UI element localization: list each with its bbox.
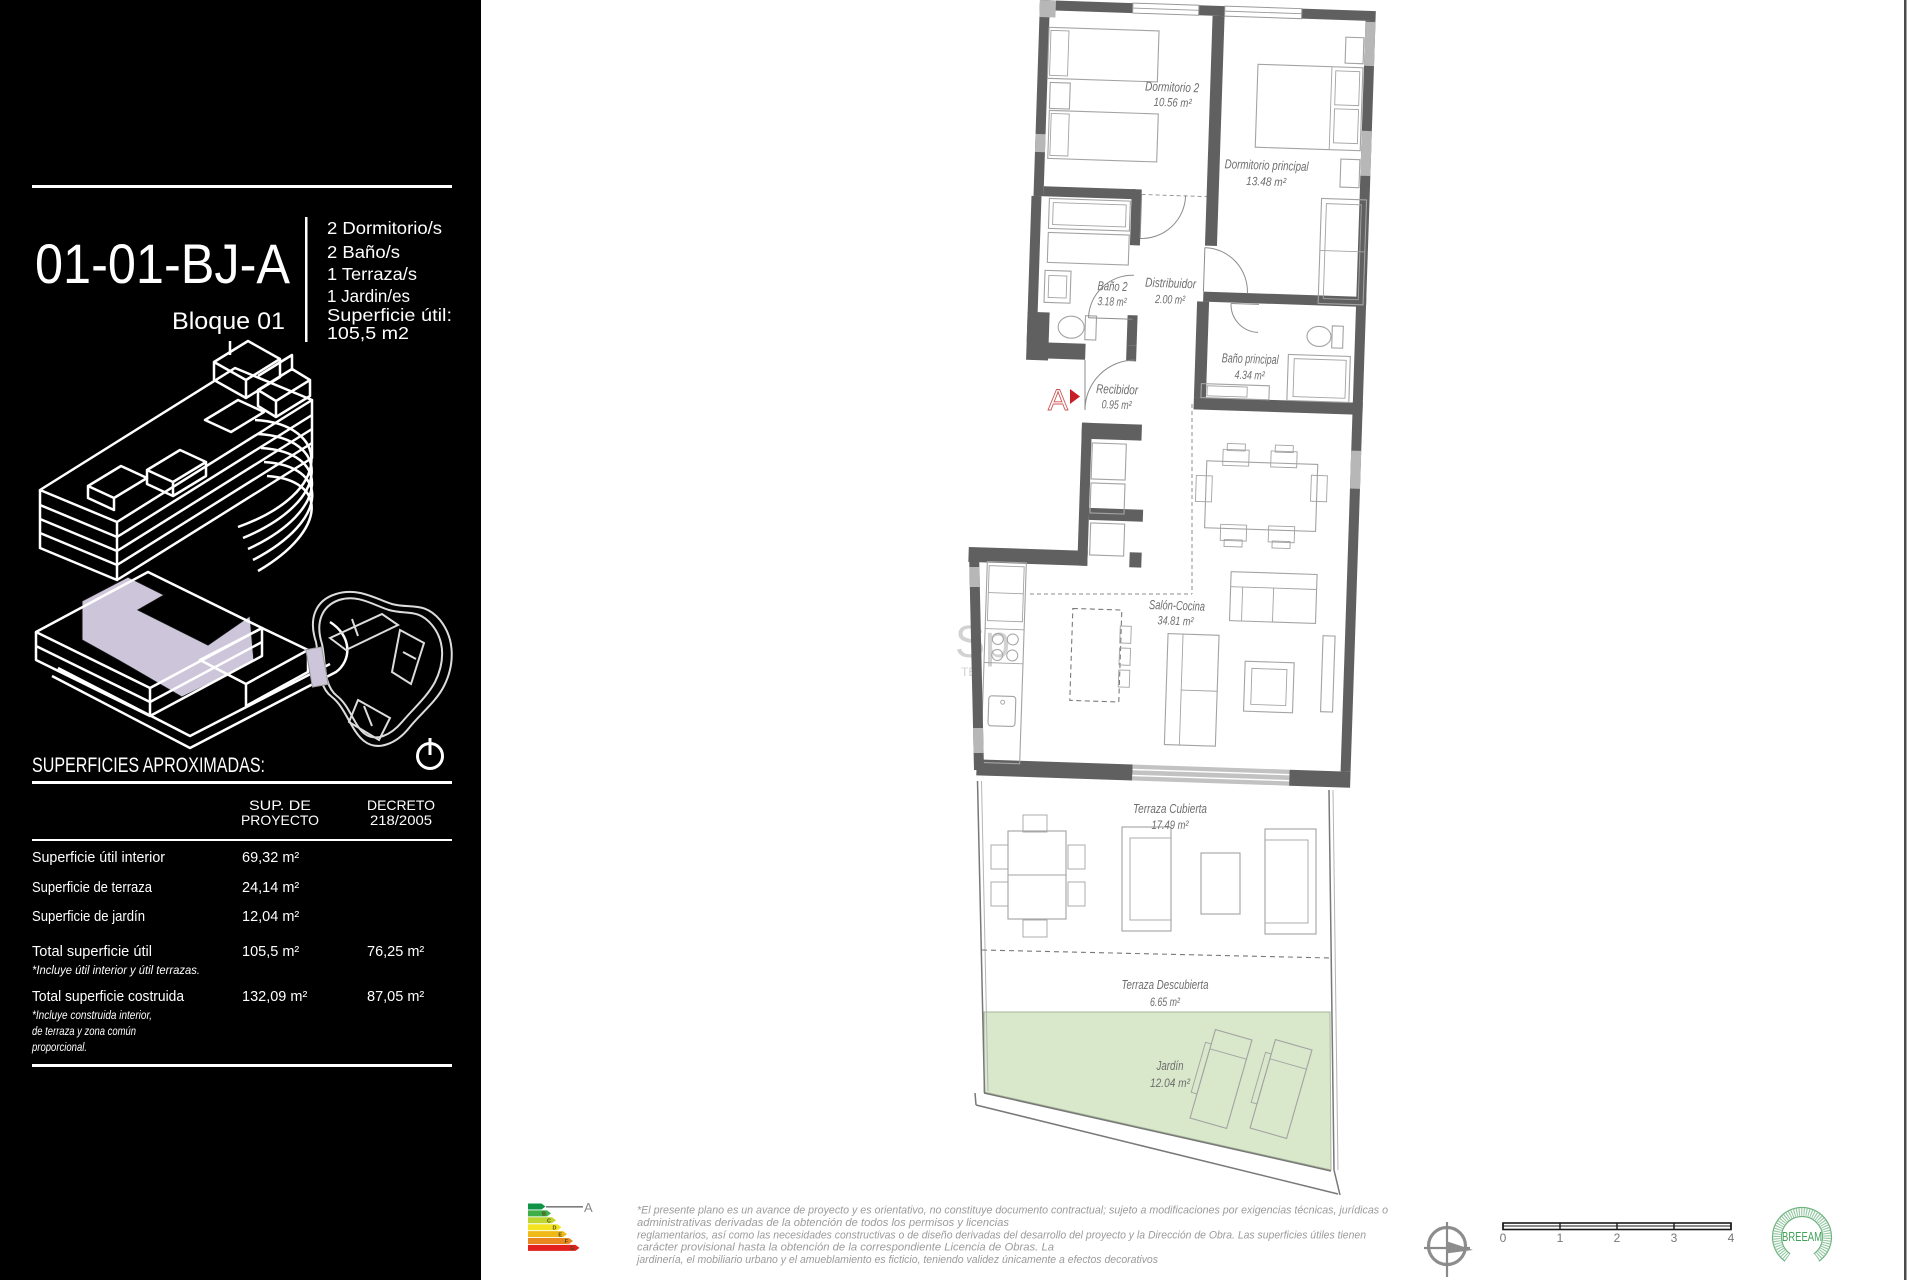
svg-text:Jardín: Jardín bbox=[1156, 1058, 1184, 1073]
svg-text:87,05 m²: 87,05 m² bbox=[367, 989, 424, 1005]
svg-text:*Incluye construida interior,: *Incluye construida interior, bbox=[32, 1008, 152, 1022]
svg-text:E: E bbox=[558, 1232, 562, 1238]
svg-text:Distribuidor: Distribuidor bbox=[1145, 275, 1197, 292]
svg-text:Bloque 01: Bloque 01 bbox=[172, 308, 285, 335]
svg-text:3: 3 bbox=[1671, 1231, 1678, 1245]
svg-text:Recibidor: Recibidor bbox=[1096, 381, 1139, 397]
svg-text:A: A bbox=[584, 1200, 593, 1215]
svg-text:10.56 m²: 10.56 m² bbox=[1153, 95, 1192, 110]
svg-text:PROYECTO: PROYECTO bbox=[241, 812, 319, 828]
svg-text:4: 4 bbox=[1728, 1231, 1735, 1245]
svg-text:69,32 m²: 69,32 m² bbox=[242, 850, 299, 866]
svg-text:0.95 m²: 0.95 m² bbox=[1101, 397, 1132, 412]
svg-text:SUP. DE: SUP. DE bbox=[249, 797, 311, 813]
svg-text:D: D bbox=[553, 1225, 557, 1231]
svg-text:1: 1 bbox=[1557, 1231, 1564, 1245]
svg-text:132,09 m²: 132,09 m² bbox=[242, 989, 307, 1005]
svg-text:Dormitorio 2: Dormitorio 2 bbox=[1145, 79, 1200, 96]
svg-text:*Incluye útil interior y útil: *Incluye útil interior y útil terrazas. bbox=[32, 963, 200, 977]
svg-text:carácter provisional hasta la: carácter provisional hasta la obtención … bbox=[637, 1242, 1054, 1254]
svg-text:Superficie útil interior: Superficie útil interior bbox=[32, 850, 165, 866]
svg-text:34.81 m²: 34.81 m² bbox=[1157, 613, 1194, 628]
svg-text:Salón-Cocina: Salón-Cocina bbox=[1149, 597, 1205, 614]
svg-text:12.04 m²: 12.04 m² bbox=[1150, 1076, 1191, 1090]
svg-text:2 Baño/s: 2 Baño/s bbox=[327, 242, 400, 262]
svg-text:C: C bbox=[547, 1219, 551, 1225]
svg-text:Baño 2: Baño 2 bbox=[1097, 278, 1128, 294]
svg-text:Total superficie costruida: Total superficie costruida bbox=[32, 989, 185, 1005]
svg-text:218/2005: 218/2005 bbox=[370, 812, 432, 828]
svg-text:*El presente plano es un avanc: *El presente plano es un avance de proye… bbox=[637, 1205, 1388, 1217]
svg-text:2: 2 bbox=[1614, 1231, 1621, 1245]
svg-text:12,04 m²: 12,04 m² bbox=[242, 909, 299, 925]
svg-text:6.65 m²: 6.65 m² bbox=[1150, 995, 1181, 1009]
svg-text:1 Terraza/s: 1 Terraza/s bbox=[327, 264, 417, 284]
svg-text:2.00 m²: 2.00 m² bbox=[1154, 292, 1186, 307]
svg-text:Sp: Sp bbox=[955, 616, 1010, 667]
svg-text:Terraza Cubierta: Terraza Cubierta bbox=[1133, 801, 1207, 816]
svg-text:01-01-BJ-A: 01-01-BJ-A bbox=[35, 232, 291, 295]
svg-text:1 Jardin/es: 1 Jardin/es bbox=[327, 286, 410, 306]
svg-text:76,25 m²: 76,25 m² bbox=[367, 944, 424, 960]
svg-text:Baño principal: Baño principal bbox=[1221, 350, 1279, 367]
svg-text:3.18 m²: 3.18 m² bbox=[1097, 294, 1127, 309]
svg-text:BREEAM: BREEAM bbox=[1782, 1230, 1822, 1244]
svg-text:Dormitorio principal: Dormitorio principal bbox=[1224, 156, 1309, 174]
svg-text:17.49 m²: 17.49 m² bbox=[1152, 818, 1190, 832]
svg-text:jardinería, el mobiliario urba: jardinería, el mobiliario urbano y el am… bbox=[635, 1254, 1158, 1266]
svg-text:Superficie de terraza: Superficie de terraza bbox=[32, 880, 153, 896]
svg-text:0: 0 bbox=[1500, 1231, 1507, 1245]
svg-text:DECRETO: DECRETO bbox=[367, 797, 435, 813]
svg-text:Superficie útil:: Superficie útil: bbox=[327, 305, 452, 325]
svg-text:105,5 m2: 105,5 m2 bbox=[327, 323, 409, 343]
svg-text:SUPERFICIES APROXIMADAS:: SUPERFICIES APROXIMADAS: bbox=[32, 754, 265, 777]
svg-text:4.34 m²: 4.34 m² bbox=[1234, 368, 1265, 383]
svg-text:A: A bbox=[1048, 384, 1068, 417]
svg-text:24,14 m²: 24,14 m² bbox=[242, 880, 299, 896]
svg-text:G: G bbox=[570, 1246, 574, 1252]
svg-text:105,5 m²: 105,5 m² bbox=[242, 944, 299, 960]
svg-text:Superficie de jardín: Superficie de jardín bbox=[32, 909, 145, 925]
svg-text:proporcional.: proporcional. bbox=[31, 1040, 87, 1054]
svg-text:Total superficie útil: Total superficie útil bbox=[32, 944, 152, 960]
svg-text:Terraza Descubierta: Terraza Descubierta bbox=[1122, 977, 1209, 992]
svg-text:de terraza y zona común: de terraza y zona común bbox=[32, 1024, 136, 1038]
svg-text:13.48 m²: 13.48 m² bbox=[1246, 174, 1287, 189]
svg-text:B: B bbox=[542, 1212, 546, 1218]
svg-text:reglamentarios, así como las n: reglamentarios, así como las necesidades… bbox=[637, 1229, 1366, 1241]
svg-text:2 Dormitorio/s: 2 Dormitorio/s bbox=[327, 218, 442, 238]
svg-text:administrativas derivadas de l: administrativas derivadas de la obtenció… bbox=[637, 1217, 1009, 1229]
